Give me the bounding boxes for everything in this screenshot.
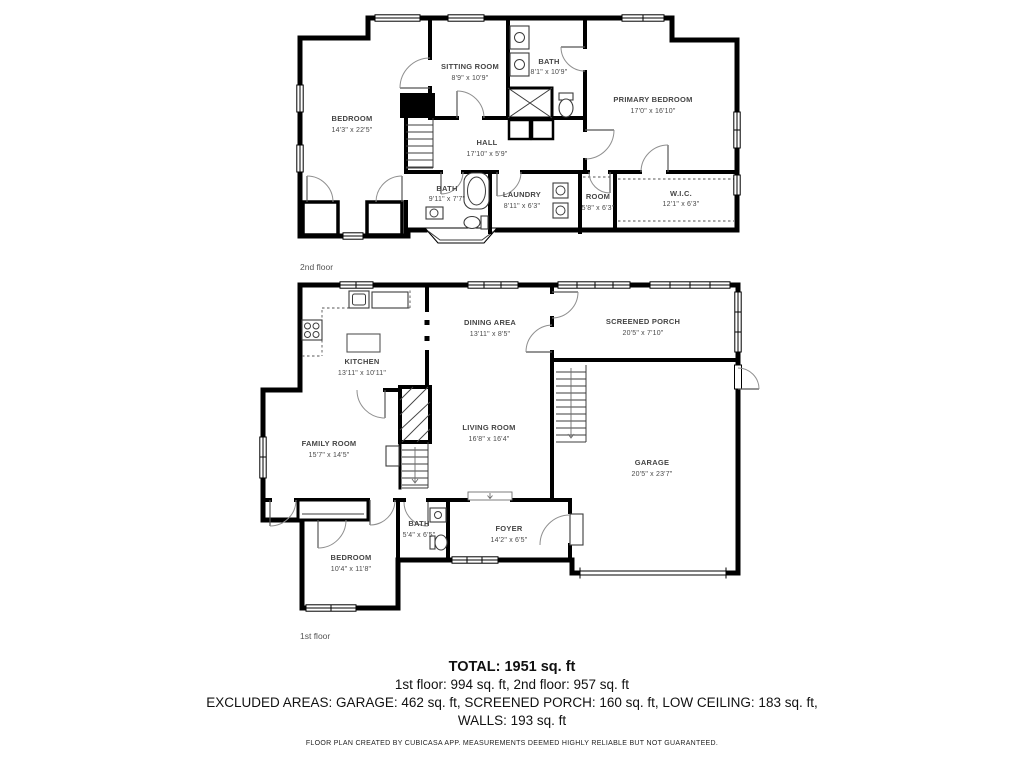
summary-excluded-line2: WALLS: 193 sq. ft [0, 712, 1024, 730]
second-floor-closets [303, 120, 734, 235]
floor-plan-drawing: BEDROOM 14'3" x 22'5" SITTING ROOM 8'9" … [0, 0, 1024, 768]
kitchen-fixtures [302, 290, 410, 356]
room-dims-foyer: 14'2" x 6'5" [491, 537, 528, 544]
sink [430, 508, 446, 522]
room-dims-bath1: 5'4" x 6'5" [403, 532, 436, 539]
room-dims-sitting-room: 8'9" x 10'9" [452, 75, 489, 82]
garage-door [580, 568, 726, 579]
room-label-foyer: FOYER [495, 524, 522, 533]
room-dims-room: 5'8" x 6'3" [582, 205, 615, 212]
stove [302, 320, 322, 340]
room-label-kitchen: KITCHEN [344, 357, 379, 366]
summary-total: TOTAL: 1951 sq. ft [0, 658, 1024, 676]
toilet [559, 99, 573, 117]
first-floor-bath-fixtures [430, 508, 447, 550]
room-dims-dining-area: 13'11" x 8'5" [470, 331, 511, 338]
room-dims-primary-bedroom: 17'0" x 16'10" [630, 108, 675, 115]
first-floor-stairs [386, 442, 428, 488]
bedroom-closet [298, 500, 368, 520]
dryer [553, 203, 568, 218]
room-dims-laundry: 8'11" x 6'3" [504, 203, 541, 210]
chimney-block [400, 93, 435, 118]
room-dims-kitchen: 13'11" x 10'11" [338, 370, 386, 377]
room-label-family-room: FAMILY ROOM [302, 439, 357, 448]
second-floor-plan: BEDROOM 14'3" x 22'5" SITTING ROOM 8'9" … [297, 15, 740, 272]
room-label-bath1: BATH [408, 519, 429, 528]
room-dims-bath-top: 8'1" x 10'9" [531, 69, 568, 76]
washer [553, 183, 568, 198]
room-label-living-room: LIVING ROOM [462, 423, 515, 432]
first-floor-plan: KITCHEN 13'11" x 10'11" DINING AREA 13'1… [260, 282, 759, 641]
toilet [435, 535, 447, 550]
room-label-primary-bedroom: PRIMARY BEDROOM [613, 95, 692, 104]
room-label-bedroom2: BEDROOM [332, 114, 373, 123]
room-label-laundry: LAUNDRY [503, 190, 541, 199]
first-floor-label: 1st floor [300, 631, 330, 641]
counter [372, 292, 408, 308]
room-label-bath-lower: BATH [436, 184, 457, 193]
room-label-garage: GARAGE [635, 458, 669, 467]
room-label-room: ROOM [586, 192, 610, 201]
room-label-screened-porch: SCREENED PORCH [606, 317, 680, 326]
room-dims-bedroom2: 14'3" x 22'5" [332, 127, 373, 134]
room-dims-living-room: 16'8" x 16'4" [469, 436, 510, 443]
fireplace-chimney [400, 387, 430, 442]
garage-stairs [556, 365, 586, 442]
kitchen-island [347, 334, 380, 352]
room-dims-bedroom1: 10'4" x 11'8" [331, 566, 372, 573]
room-dims-hall: 17'10" x 5'9" [467, 151, 508, 158]
room-label-bedroom1: BEDROOM [331, 553, 372, 562]
summary-block: TOTAL: 1951 sq. ft 1st floor: 994 sq. ft… [0, 658, 1024, 747]
floor-plan-page: BEDROOM 14'3" x 22'5" SITTING ROOM 8'9" … [0, 0, 1024, 768]
room-label-hall: HALL [477, 138, 498, 147]
bay-window [425, 228, 497, 243]
summary-disclaimer: FLOOR PLAN CREATED BY CUBICASA APP. MEAS… [0, 740, 1024, 747]
room-label-bath-top: BATH [538, 57, 559, 66]
summary-floors-line: 1st floor: 994 sq. ft, 2nd floor: 957 sq… [0, 676, 1024, 694]
room-dims-family-room: 15'7" x 14'5" [309, 452, 350, 459]
front-door-panel [570, 514, 583, 545]
room-label-dining-area: DINING AREA [464, 318, 516, 327]
second-floor-label: 2nd floor [300, 262, 333, 272]
second-floor-stairs [406, 118, 433, 168]
room-dims-screened-porch: 20'5" x 7'10" [623, 330, 664, 337]
room-dims-garage: 20'5" x 23'7" [632, 471, 673, 478]
toilet [464, 217, 480, 229]
room-label-sitting-room: SITTING ROOM [441, 62, 499, 71]
room-dims-bath-lower: 9'11" x 7'7" [429, 196, 466, 203]
room-label-wic: W.I.C. [670, 189, 692, 198]
first-floor-room-labels: KITCHEN 13'11" x 10'11" DINING AREA 13'1… [302, 317, 681, 573]
room-dims-wic: 12'1" x 6'3" [663, 201, 700, 208]
summary-excluded-line1: EXCLUDED AREAS: GARAGE: 462 sq. ft, SCRE… [0, 694, 1024, 712]
